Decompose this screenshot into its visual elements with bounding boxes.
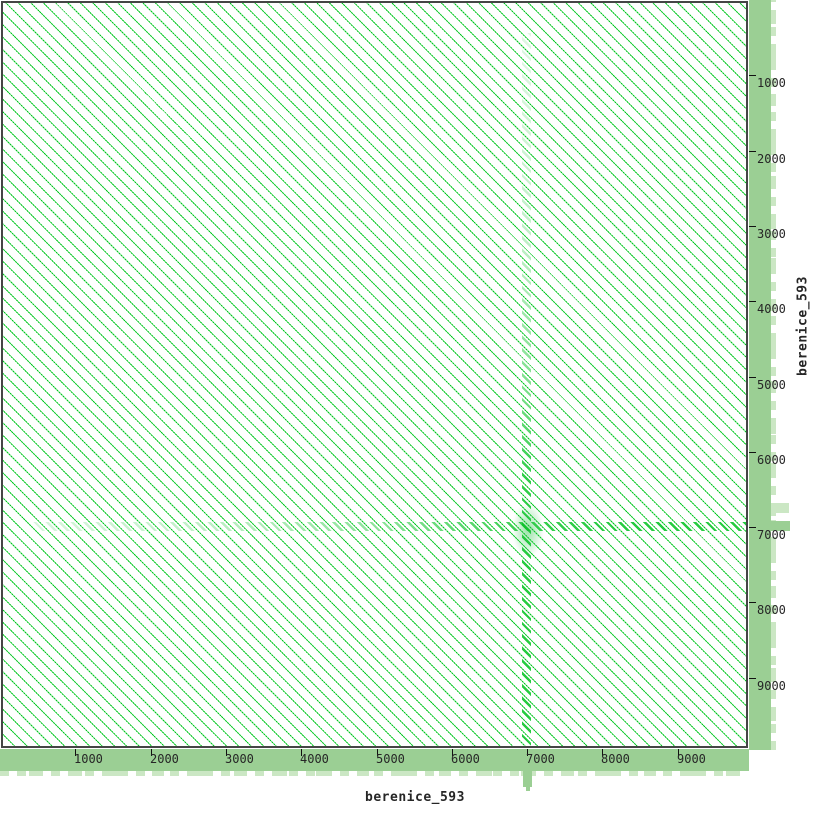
bottom-profile-ragged-edge xyxy=(0,771,748,776)
right-profile-band xyxy=(749,0,771,750)
bottom-profile-band xyxy=(0,749,749,771)
y-tick-mark xyxy=(749,226,756,227)
y-tick-label: 6000 xyxy=(757,454,786,466)
bottom-profile-spike-7000 xyxy=(523,771,532,787)
x-tick-label: 6000 xyxy=(451,753,480,765)
x-tick-label: 7000 xyxy=(526,753,555,765)
y-tick-label: 7000 xyxy=(757,529,786,541)
y-tick-mark xyxy=(749,452,756,453)
x-tick-label: 3000 xyxy=(225,753,254,765)
right-profile-bump-7000 xyxy=(771,503,789,513)
y-tick-mark xyxy=(749,602,756,603)
x-tick-label: 2000 xyxy=(150,753,179,765)
repeat-diagonals-pattern xyxy=(3,3,746,746)
y-tick-label: 2000 xyxy=(757,153,786,165)
streak-intersection-blob xyxy=(508,495,548,565)
x-tick-label: 8000 xyxy=(601,753,630,765)
x-axis-title: berenice_593 xyxy=(0,790,830,805)
y-tick-label: 4000 xyxy=(757,303,786,315)
x-tick-label: 4000 xyxy=(300,753,329,765)
y-tick-label: 5000 xyxy=(757,379,786,391)
x-tick-label: 9000 xyxy=(677,753,706,765)
y-tick-mark xyxy=(749,301,756,302)
y-tick-mark xyxy=(749,75,756,76)
y-tick-mark xyxy=(749,678,756,679)
y-axis-title: berenice_593 xyxy=(796,276,811,376)
y-tick-mark xyxy=(749,527,756,528)
plot-area xyxy=(1,1,748,748)
y-tick-mark xyxy=(749,377,756,378)
right-profile-ragged-edge xyxy=(771,0,776,750)
y-tick-label: 1000 xyxy=(757,77,786,89)
x-tick-label: 1000 xyxy=(74,753,103,765)
horizontal-streak-7000 xyxy=(33,522,746,531)
vertical-streak-7000 xyxy=(522,33,531,746)
dotplot-canvas: 100020003000400050006000700080009000 100… xyxy=(0,0,830,830)
y-tick-mark xyxy=(749,151,756,152)
y-tick-label: 3000 xyxy=(757,228,786,240)
x-tick-label: 5000 xyxy=(376,753,405,765)
y-tick-label: 8000 xyxy=(757,604,786,616)
y-tick-label: 9000 xyxy=(757,680,786,692)
